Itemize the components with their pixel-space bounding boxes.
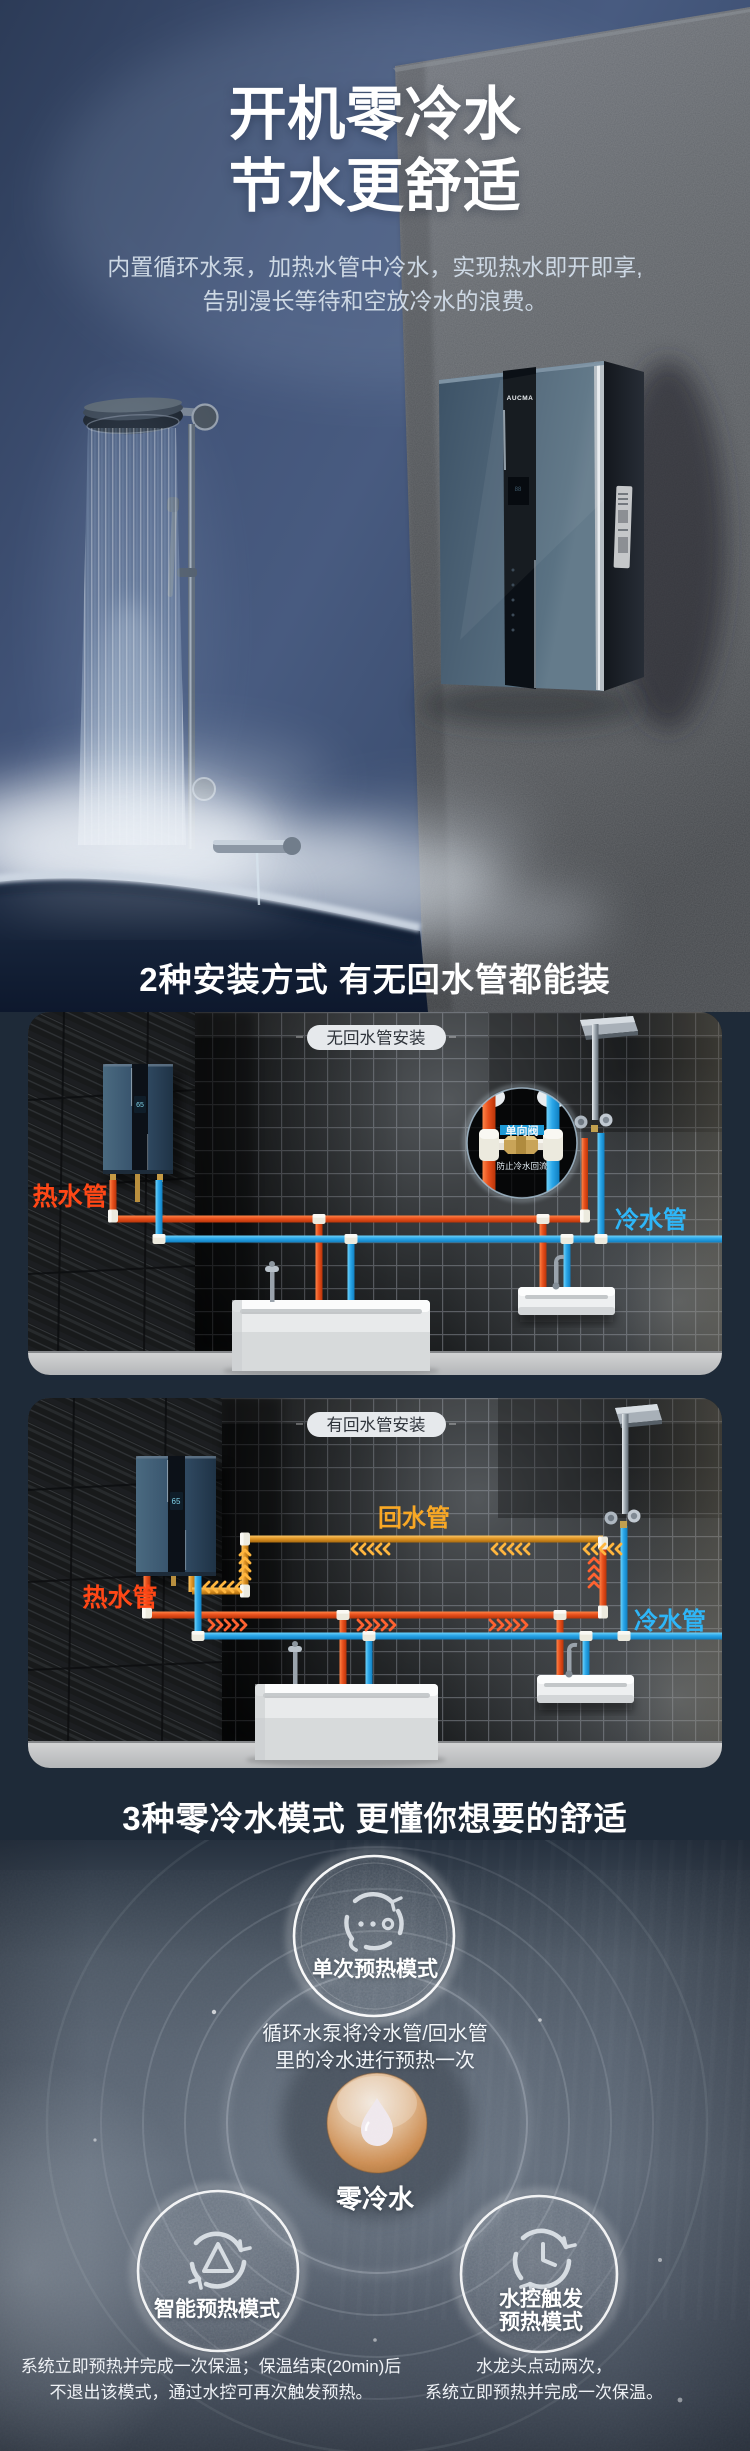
svg-text:回水管: 回水管: [378, 1504, 450, 1532]
svg-text:单向阀: 单向阀: [506, 1124, 539, 1138]
svg-text:65: 65: [136, 1102, 144, 1109]
svg-text:热水管: 热水管: [82, 1583, 157, 1612]
svg-text:冷水管: 冷水管: [634, 1607, 706, 1635]
svg-text:无回水管安装: 无回水管安装: [327, 1029, 426, 1048]
svg-text:65: 65: [172, 1497, 181, 1506]
svg-text:防止冷水回流: 防止冷水回流: [496, 1161, 548, 1171]
svg-text:热水管: 热水管: [32, 1182, 107, 1211]
svg-text:冷水管: 冷水管: [615, 1206, 687, 1234]
svg-text:有回水管安装: 有回水管安装: [327, 1416, 426, 1435]
svg-text:88: 88: [515, 487, 522, 493]
